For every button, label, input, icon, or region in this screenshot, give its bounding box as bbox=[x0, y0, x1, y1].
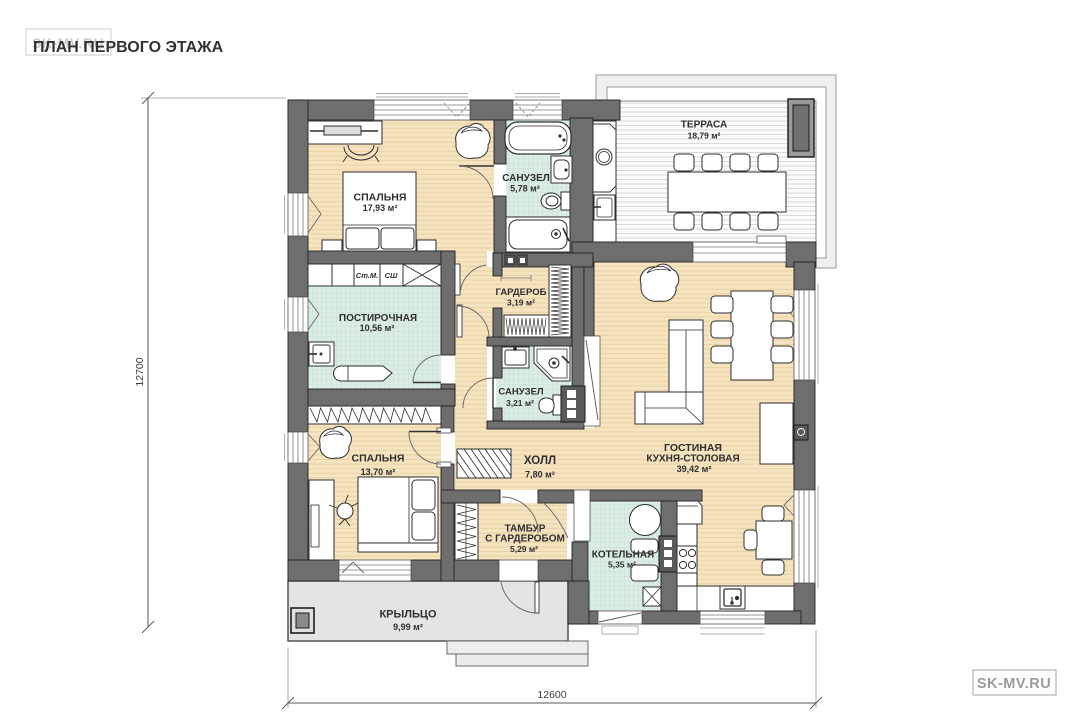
svg-text:КРЫЛЬЦО: КРЫЛЬЦО bbox=[379, 609, 436, 621]
svg-text:7,80 м²: 7,80 м² bbox=[525, 470, 555, 480]
svg-text:С ГАРДЕРОБОМ: С ГАРДЕРОБОМ bbox=[485, 534, 565, 545]
svg-text:SK-MV.RU: SK-MV.RU bbox=[977, 676, 1051, 692]
svg-text:12700: 12700 bbox=[134, 357, 146, 386]
svg-text:Ст.М.: Ст.М. bbox=[356, 271, 378, 280]
svg-text:5,35 м²: 5,35 м² bbox=[608, 560, 636, 570]
svg-text:СПАЛЬНЯ: СПАЛЬНЯ bbox=[354, 192, 407, 204]
svg-text:САНУЗЕЛ: САНУЗЕЛ bbox=[502, 173, 550, 184]
svg-text:13,70 м²: 13,70 м² bbox=[361, 467, 396, 477]
svg-text:СПАЛЬНЯ: СПАЛЬНЯ bbox=[352, 453, 405, 465]
svg-text:ПЛАН ПЕРВОГО ЭТАЖА: ПЛАН ПЕРВОГО ЭТАЖА bbox=[33, 39, 224, 56]
svg-text:10,56 м²: 10,56 м² bbox=[360, 323, 395, 333]
svg-text:18,79 м²: 18,79 м² bbox=[688, 131, 721, 141]
svg-text:39,42 м²: 39,42 м² bbox=[677, 464, 712, 474]
svg-text:3,21 м²: 3,21 м² bbox=[506, 398, 534, 408]
svg-text:ГАРДЕРОБ: ГАРДЕРОБ bbox=[496, 287, 547, 298]
svg-text:5,78 м²: 5,78 м² bbox=[510, 184, 540, 194]
svg-text:5,29 м²: 5,29 м² bbox=[510, 544, 538, 554]
svg-text:17,93 м²: 17,93 м² bbox=[363, 203, 398, 213]
svg-text:ХОЛЛ: ХОЛЛ bbox=[524, 455, 556, 467]
svg-text:12600: 12600 bbox=[537, 689, 566, 701]
svg-text:ТЕРРАСА: ТЕРРАСА bbox=[681, 120, 727, 131]
svg-text:ГОСТИНАЯ: ГОСТИНАЯ bbox=[664, 442, 722, 454]
svg-text:3,19 м²: 3,19 м² bbox=[507, 298, 535, 308]
svg-text:КУХНЯ-СТОЛОВАЯ: КУХНЯ-СТОЛОВАЯ bbox=[646, 454, 739, 465]
svg-text:САНУЗЕЛ: САНУЗЕЛ bbox=[498, 387, 544, 398]
svg-text:СШ: СШ bbox=[385, 271, 398, 280]
svg-text:9,99 м²: 9,99 м² bbox=[393, 622, 423, 632]
